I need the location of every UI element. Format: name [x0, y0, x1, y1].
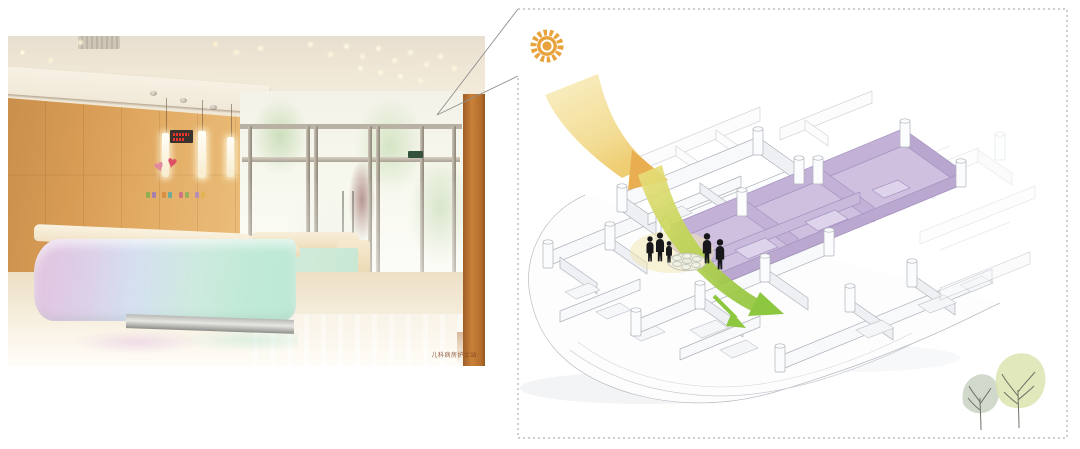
- diagram-frame: [518, 9, 1067, 438]
- page: ♥ ♥: [0, 0, 1080, 449]
- daylight-floor-wash: [630, 231, 714, 273]
- photo-watermark: 儿科病房护士站: [431, 350, 477, 359]
- pendant-cord: [166, 98, 167, 133]
- dome-fixture: [180, 98, 187, 103]
- ceiling-downlights: [20, 50, 25, 55]
- dome-fixture: [150, 91, 157, 96]
- ceiling-vent: [78, 36, 120, 49]
- reception-plan-sketch: [668, 254, 706, 271]
- pendant-light: [227, 137, 234, 177]
- pendant-cord: [202, 100, 203, 131]
- pendant-cord: [231, 104, 232, 137]
- columns: [543, 119, 966, 372]
- led-display: [170, 130, 193, 143]
- pendant-light: [198, 131, 206, 178]
- wall-graffiti-decal: [146, 185, 207, 203]
- sunbeam-arrowhead: [628, 150, 668, 190]
- tree-icon-left: [963, 374, 999, 430]
- sun-icon: [534, 33, 561, 60]
- figure-group-right: [703, 233, 724, 269]
- tree-icon-right: [996, 353, 1046, 428]
- floor-reflection-desk: [68, 328, 298, 364]
- secondary-arrow: [714, 296, 746, 328]
- highlight-zone: [666, 128, 961, 284]
- building-sketch: [520, 91, 1035, 404]
- circulation-arrow: [638, 165, 784, 316]
- figure-group-left: [647, 232, 672, 262]
- circulation-arrowhead: [748, 292, 784, 316]
- lobby-photo: ♥ ♥: [8, 36, 485, 366]
- reception-desk: [34, 239, 296, 321]
- transom-bar: [242, 157, 460, 162]
- wood-column: [463, 94, 485, 366]
- sunlight-beam: [545, 74, 668, 190]
- storefront-header: [240, 124, 462, 129]
- exit-sign: [408, 151, 423, 158]
